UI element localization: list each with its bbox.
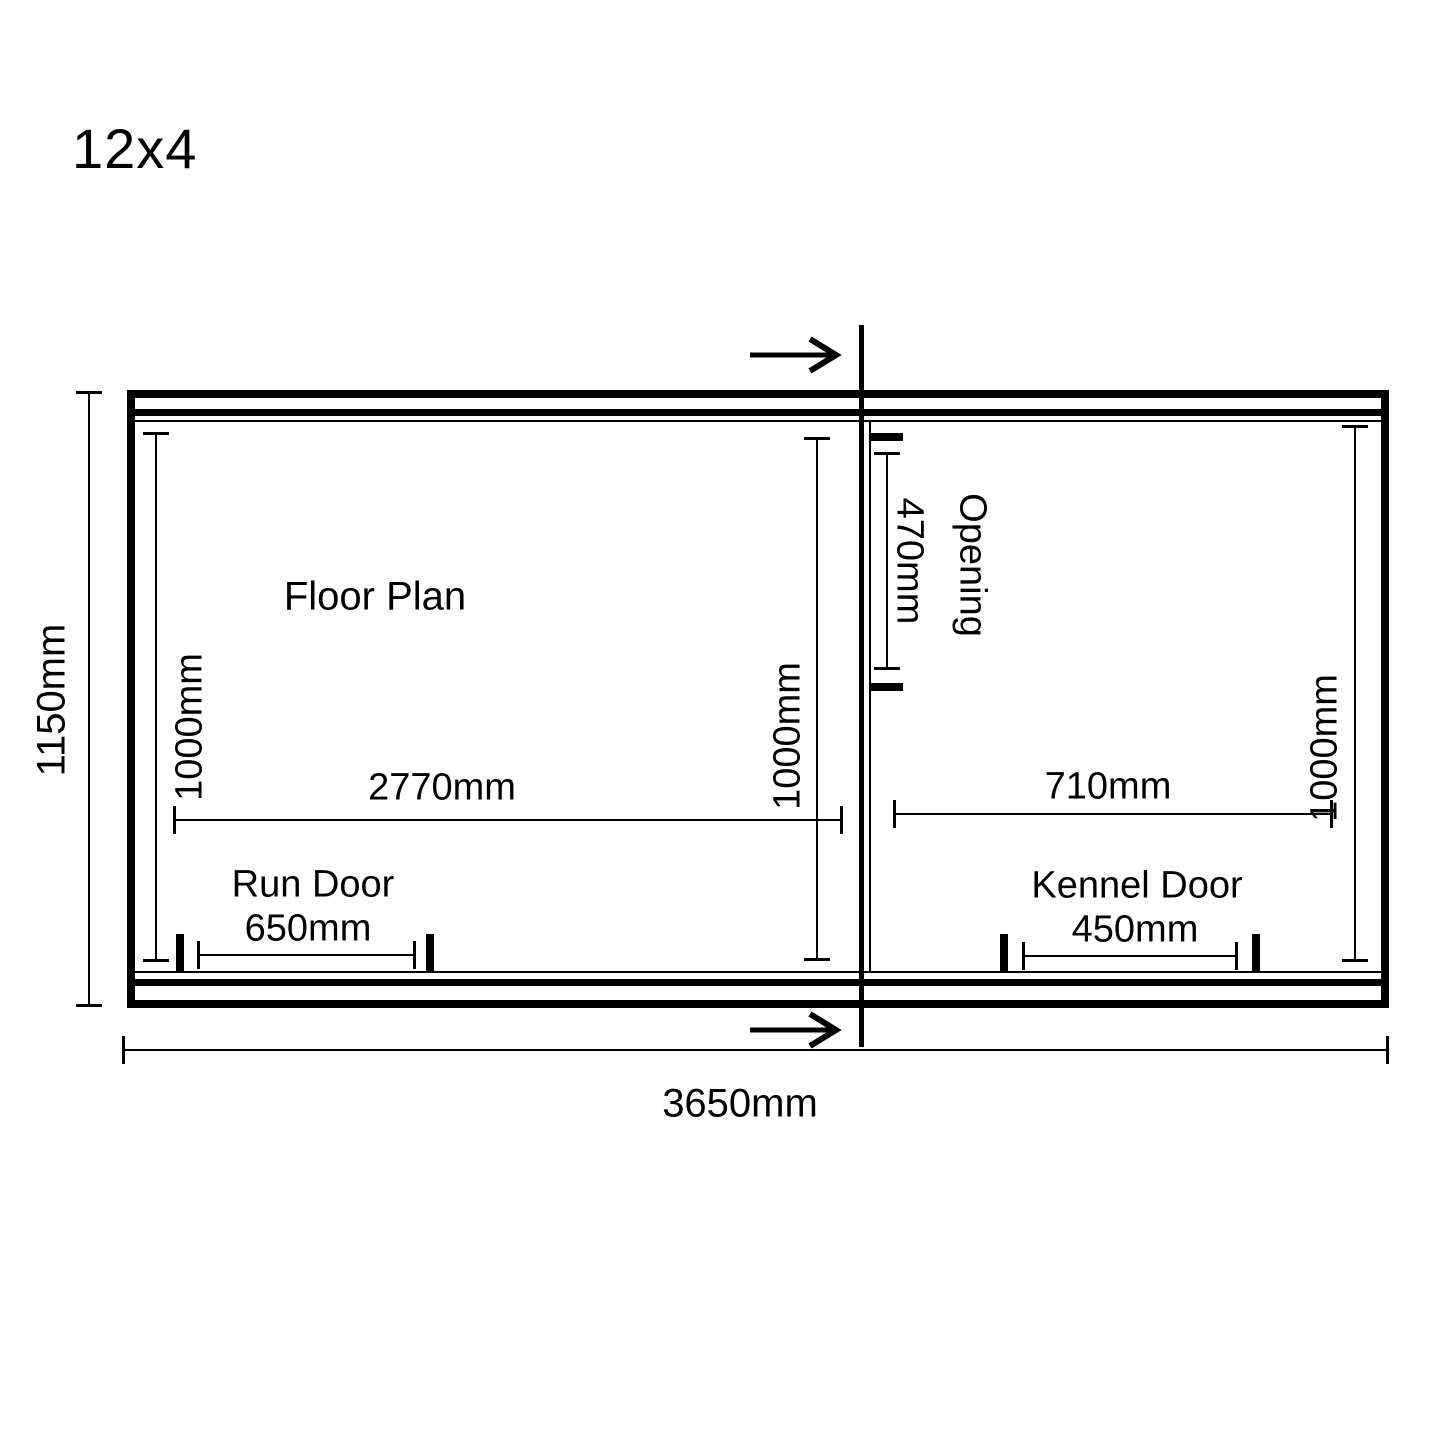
dim-line-kennel-width <box>893 813 1333 815</box>
dim-label-kennel-width: 710mm <box>1045 766 1172 809</box>
dim-label-run-depth-left: 1000mm <box>169 653 212 801</box>
dim-line-kennel-door <box>1022 955 1238 957</box>
dim-label-run-door: 650mm <box>245 908 372 951</box>
slide-direction-arrow-bottom <box>748 1010 848 1050</box>
dim-label-kennel-depth: 1000mm <box>1304 674 1347 822</box>
dim-line-run-door <box>197 954 416 956</box>
dim-label-kennel-door: 450mm <box>1072 909 1199 952</box>
dim-line-overall-length <box>122 1049 1389 1051</box>
top-inner-wall-thick <box>135 409 1381 416</box>
opening-label: Opening <box>951 493 994 637</box>
dim-label-run-depth-right: 1000mm <box>767 662 810 810</box>
run-door-jamb-left <box>176 934 184 972</box>
dim-line-run-depth-right <box>816 437 818 961</box>
dim-label-opening-width: 470mm <box>888 498 931 625</box>
bottom-inner-wall-thin <box>135 971 1381 973</box>
dim-line-run-width <box>173 819 843 821</box>
dim-line-overall-depth <box>88 391 90 1007</box>
opening-jamb-top <box>871 433 903 441</box>
floor-plan-canvas: 12x4 1150mm 3650mm 1000mm 1000mm 1000mm … <box>0 0 1445 1445</box>
dim-label-overall-depth: 1150mm <box>30 624 75 777</box>
partition-divider-line <box>859 325 864 1047</box>
dim-line-kennel-depth <box>1354 425 1356 962</box>
dim-label-run-width: 2770mm <box>368 767 516 810</box>
run-door-jamb-right <box>426 934 434 972</box>
kennel-door-jamb-right <box>1252 934 1260 972</box>
dim-label-overall-length: 3650mm <box>662 1082 818 1127</box>
kennel-door-jamb-left <box>1000 934 1008 972</box>
dim-line-run-depth-left <box>155 432 157 962</box>
top-inner-wall-thin <box>135 420 1381 422</box>
kennel-door-label: Kennel Door <box>1031 865 1242 908</box>
partition-inner-thin-line <box>869 422 871 972</box>
opening-jamb-bottom <box>871 683 903 691</box>
run-door-label: Run Door <box>232 864 395 907</box>
bottom-inner-wall-thick <box>135 979 1381 986</box>
slide-direction-arrow-top <box>748 335 848 375</box>
page-title: 12x4 <box>72 116 197 181</box>
floor-plan-label: Floor Plan <box>284 575 466 620</box>
